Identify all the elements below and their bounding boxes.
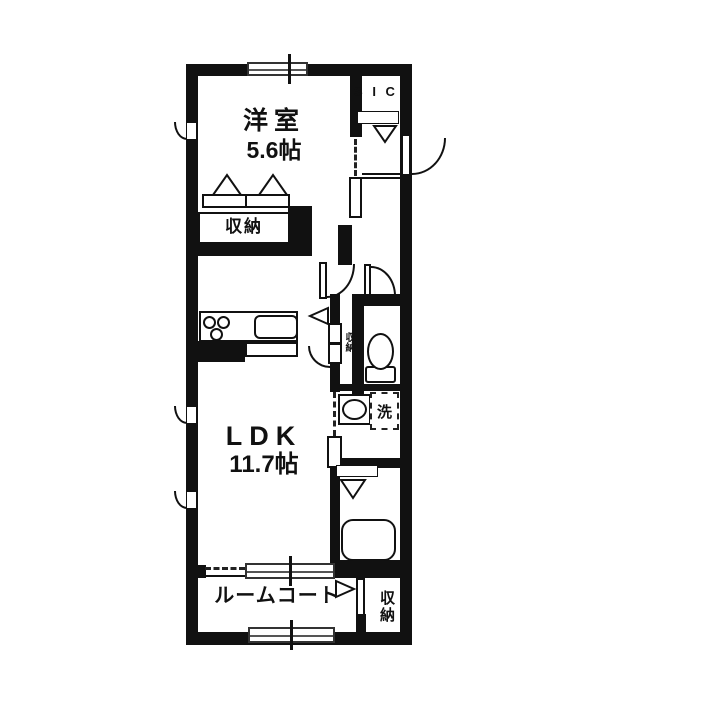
- court-closet-label: 収納: [370, 584, 394, 630]
- ldk-size: 11.7帖: [204, 452, 324, 477]
- wall-closet-stub: [288, 206, 312, 256]
- washroom-opening-dashes: [333, 392, 336, 436]
- washroom-door: [327, 436, 342, 468]
- kitchen-sink: [254, 315, 298, 339]
- window-top-tick: [288, 54, 291, 84]
- westernroom-door: [349, 177, 362, 218]
- ldk-door-leaf: [319, 262, 327, 299]
- ldk-label: LDK: [204, 422, 324, 450]
- stove-burner-icon-1: [203, 316, 216, 329]
- hall-closet-arc: [308, 346, 330, 368]
- window-western-left: [174, 122, 198, 142]
- toilet-bowl-icon: [367, 333, 394, 370]
- sic-shelf: [357, 111, 399, 124]
- court-open-edge-dashes: [205, 567, 245, 570]
- hall-closet-label: 収納: [339, 320, 353, 364]
- entrance-door-arc: [412, 138, 446, 175]
- floor-plan: S I C 洋室 5.6帖 収納 収納: [0, 0, 720, 720]
- entrance-step-icon: [372, 124, 398, 144]
- laundry-space: 洗: [370, 392, 399, 430]
- wall-washroom-top: [340, 384, 400, 391]
- court-closet-door-icon: [334, 579, 356, 599]
- westernroom-closet-label: 収納: [208, 218, 280, 236]
- ldk-door-arc: [327, 264, 355, 298]
- window-ldk-left-2: [174, 491, 198, 511]
- court-closet-door-leaf: [356, 578, 365, 616]
- toilet-door-arc: [371, 266, 396, 296]
- westernroom-label: 洋室: [214, 108, 334, 134]
- window-ldk-left-1: [174, 406, 198, 426]
- window-top: [247, 62, 308, 76]
- window-ldk-court-tick: [289, 556, 292, 586]
- hall-closet-door-icon: [308, 306, 330, 326]
- hall-opening-dashes: [354, 139, 357, 176]
- stove-burner-icon-3: [210, 328, 223, 341]
- kitchen-counter-front: [245, 342, 298, 357]
- entrance-door-leaf: [401, 134, 411, 176]
- washbasin-bowl-icon: [342, 399, 367, 420]
- room-court-label: ルームコート: [197, 586, 357, 607]
- westernroom-closet-door-split: [245, 194, 247, 208]
- toilet-door-leaf: [364, 264, 371, 296]
- window-court-bottom-tick: [290, 620, 293, 650]
- wall-bath-bottom: [330, 560, 402, 578]
- stove-burner-icon-2: [217, 316, 230, 329]
- wall-ldk-service-2: [330, 364, 340, 392]
- court-open-edge-line: [205, 575, 245, 577]
- wall-court-closet: [356, 614, 366, 632]
- bath-entry-shelf: [336, 465, 378, 477]
- wall-left: [186, 64, 198, 645]
- laundry-label: 洗: [377, 401, 392, 422]
- westernroom-size: 5.6帖: [214, 138, 334, 162]
- sic-label: S I C: [352, 85, 400, 99]
- entrance-step-edge: [362, 173, 400, 179]
- bathtub-icon: [341, 519, 396, 561]
- bath-door-icon: [339, 478, 367, 500]
- kitchen-wall-stub: [198, 341, 245, 362]
- wall-hall-lower: [338, 225, 352, 265]
